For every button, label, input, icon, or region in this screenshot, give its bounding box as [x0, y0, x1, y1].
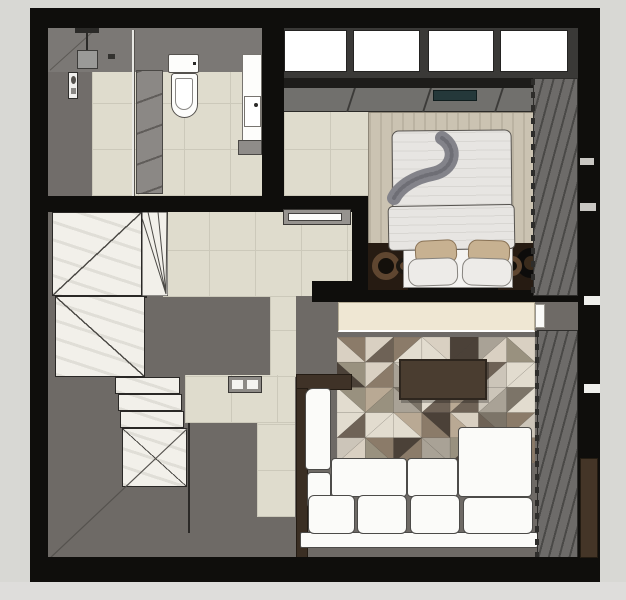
shower-glass-panel: [132, 30, 134, 196]
wall-appliance: [228, 376, 262, 393]
bedroom: [284, 28, 578, 296]
storage-cabinet: [136, 70, 163, 194]
shower-control-panel: [68, 72, 78, 99]
window-pane-4: [500, 30, 568, 72]
sofa-back-cushion-1: [331, 458, 407, 497]
facade-slit-2: [580, 203, 596, 211]
bedroom-floor: [284, 112, 368, 196]
stair-winders: [142, 212, 168, 296]
sofa-back-cushion-2: [407, 458, 458, 497]
coffee-table: [399, 359, 487, 400]
wall-top: [30, 8, 600, 28]
facade-slit-4: [584, 384, 600, 393]
balcony-cabinet: [580, 458, 598, 558]
facade-slit-1: [580, 158, 594, 165]
window-sill-unit: [284, 88, 556, 112]
sofa-seat-cushion-4: [463, 497, 533, 534]
window-pane-3: [428, 30, 494, 72]
facade-slit-3: [584, 296, 600, 305]
wall-bath-bedroom: [262, 8, 284, 212]
stair-step-2: [118, 394, 182, 411]
sofa-seat-cushion-3: [410, 495, 460, 534]
sofa-back-left-1: [305, 388, 331, 470]
window-pane-2: [353, 30, 420, 72]
toilet-cistern: [168, 54, 199, 73]
stair-lower-flight: [188, 423, 256, 533]
shower-valve: [108, 54, 115, 59]
window-sill-dark: [284, 78, 556, 88]
shower-bracket: [75, 28, 99, 33]
ac-unit: [433, 90, 477, 101]
sofa-chaise: [458, 427, 532, 497]
bedroom-curtain: [533, 78, 578, 296]
toilet-bowl: [171, 73, 198, 118]
vanity-counter: [238, 140, 262, 155]
console-end-cap: [535, 304, 545, 328]
stair-square-low: [122, 428, 187, 487]
sofa-seat-cushion-2: [357, 495, 407, 534]
stair-step-3: [120, 411, 184, 428]
wall-bottom: [30, 557, 600, 582]
stair-upper-flight: [145, 296, 290, 373]
stair-step-1: [115, 377, 180, 394]
window-band: [284, 28, 578, 78]
background-bottom-strip: [0, 582, 626, 600]
curtain-scallop-edge: [531, 79, 535, 295]
throw-blanket: [380, 124, 480, 216]
faucet: [254, 103, 258, 107]
floor-plan: [0, 0, 626, 600]
bedroom-door-leaf: [288, 213, 342, 221]
tv-console: [338, 302, 535, 332]
shower-head: [77, 50, 98, 69]
bathroom: [48, 28, 262, 196]
wall-left: [30, 8, 48, 582]
living-room: [296, 296, 578, 562]
curtain-scallop-edge: [535, 331, 539, 559]
sink: [244, 96, 261, 127]
sofa-seat-cushion-1: [308, 495, 355, 534]
sofa-seat-base: [300, 532, 538, 548]
stair-landing: [52, 212, 142, 296]
window-pane-1: [284, 30, 347, 72]
stair-square-mid: [55, 296, 145, 377]
pillow-white-right: [462, 257, 513, 287]
living-curtain: [537, 330, 578, 560]
hall-floor-lower-right: [257, 423, 295, 517]
pillow-white-left: [408, 257, 459, 287]
